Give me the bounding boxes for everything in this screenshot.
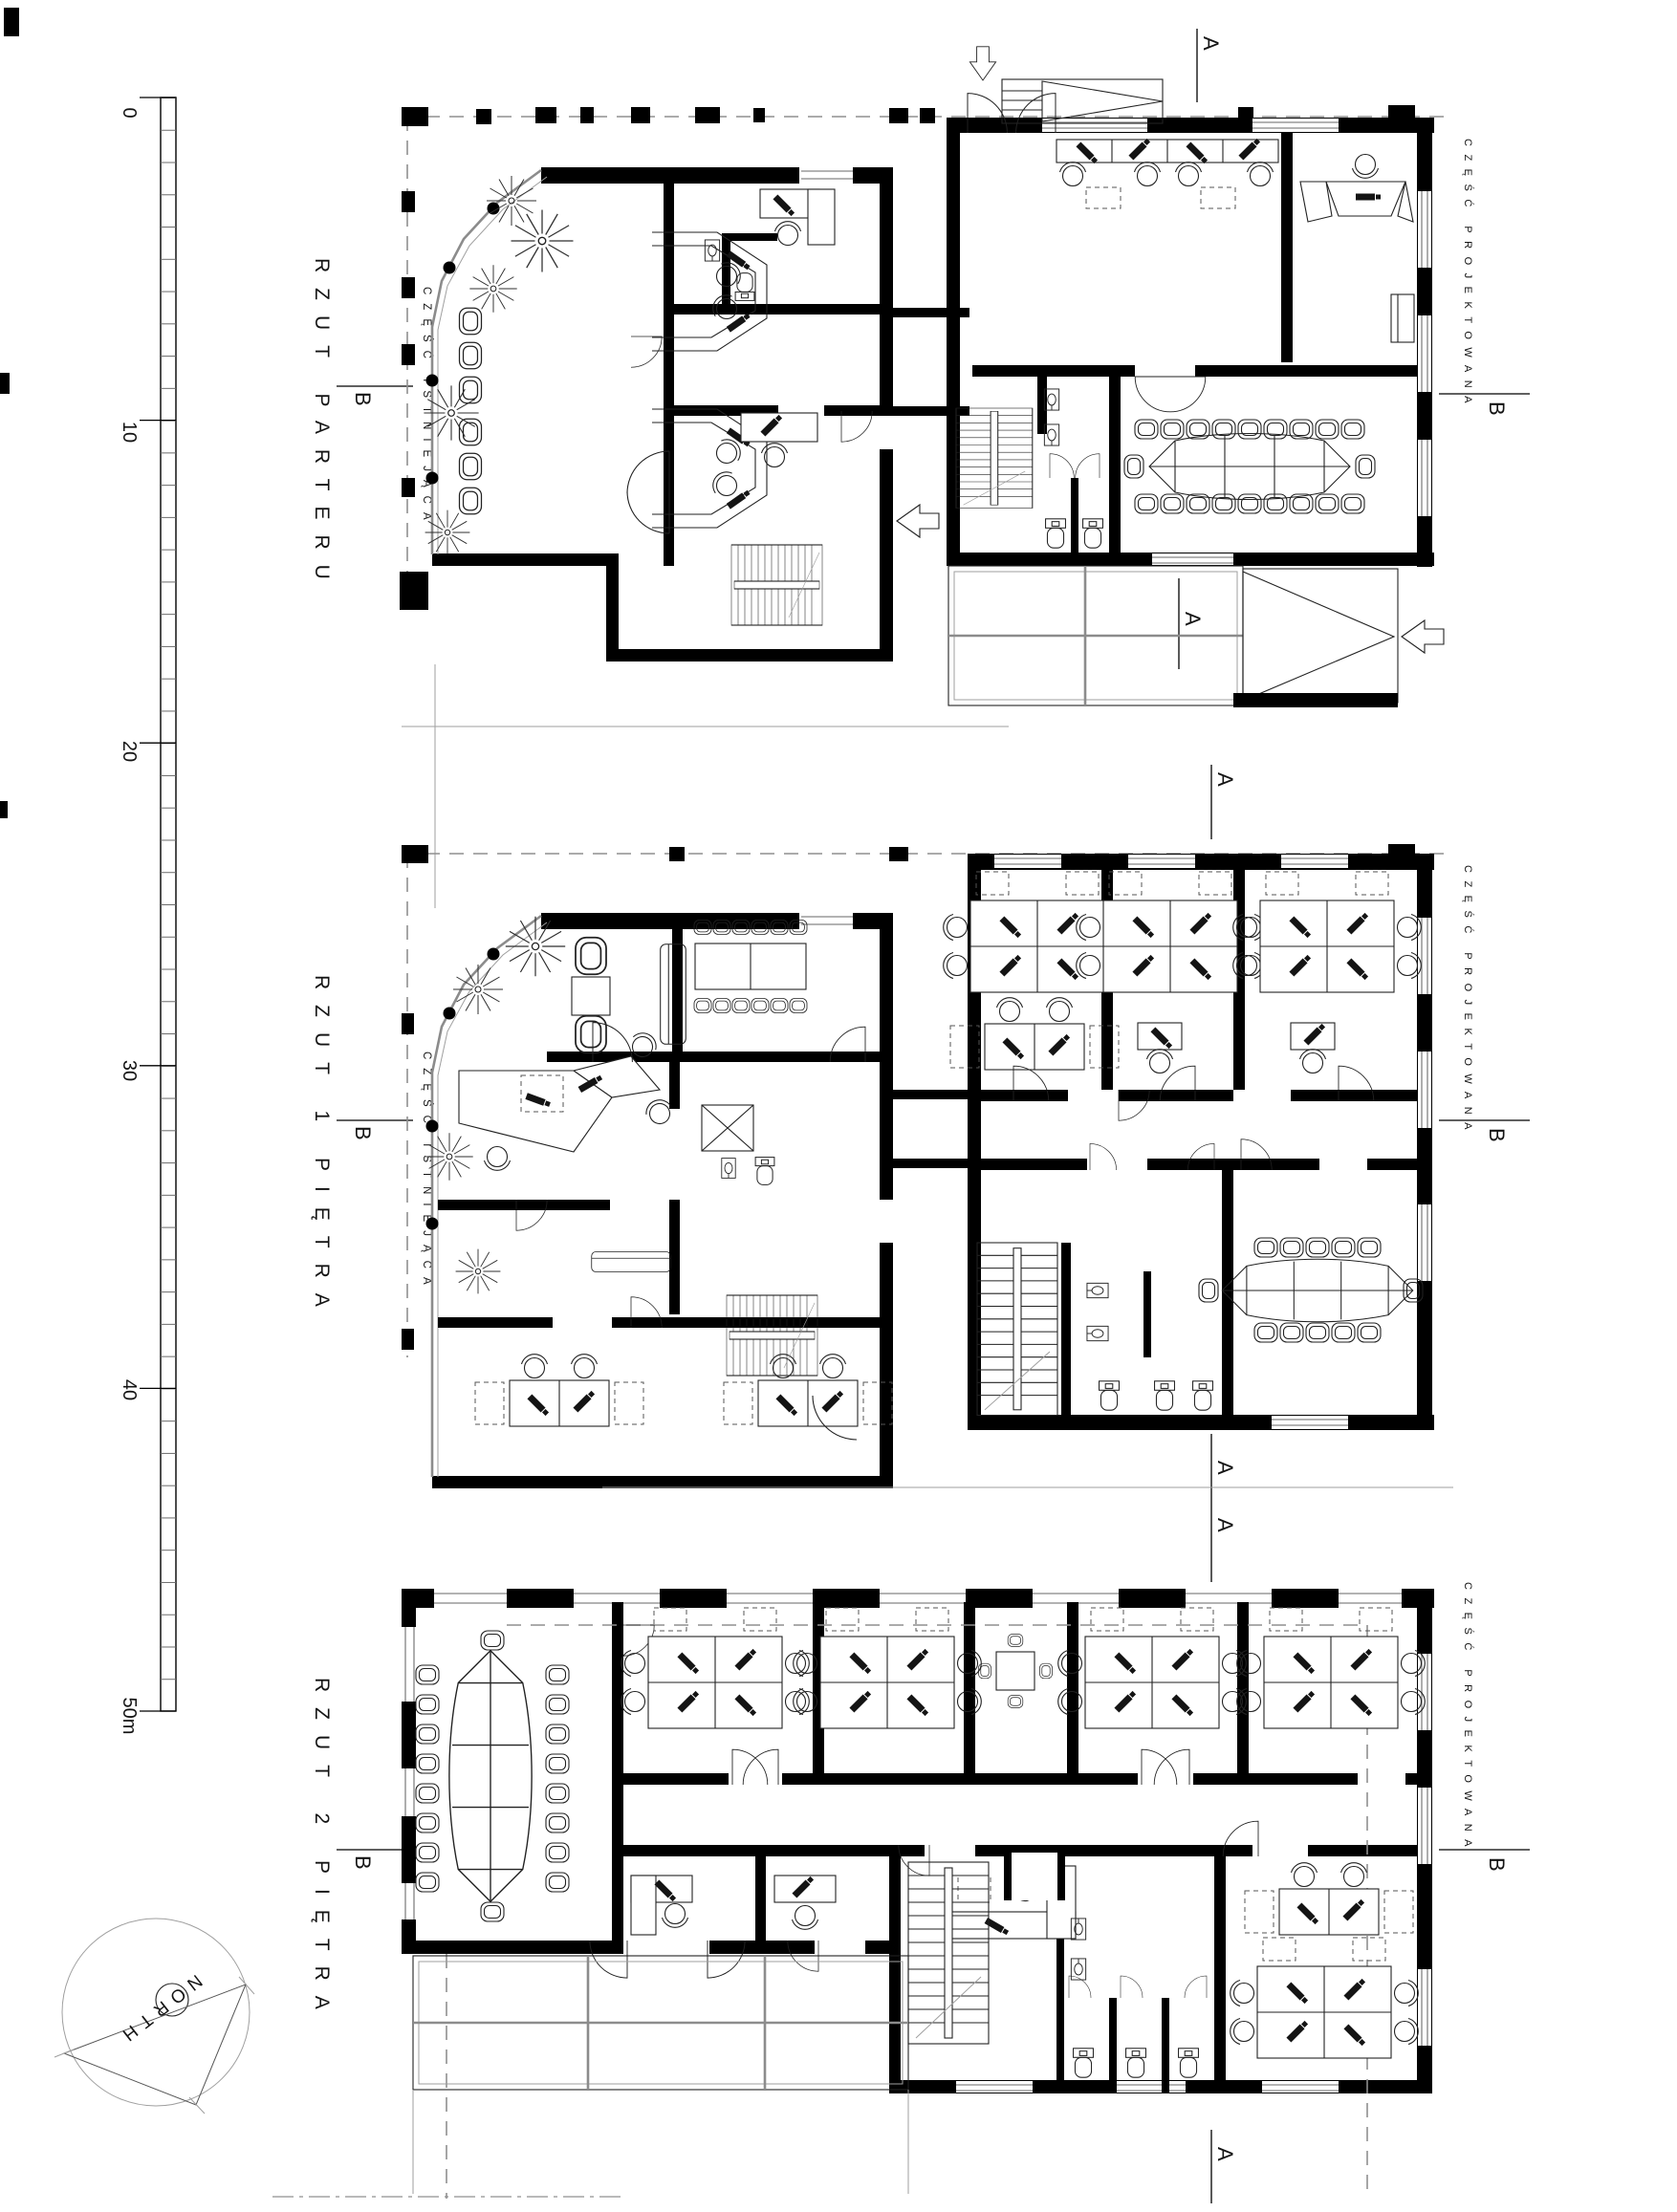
svg-text:B: B [351,1126,375,1140]
section-marker-a-top: A [1211,1508,1237,1582]
svg-text:A: A [1213,772,1237,787]
stairs [908,1862,989,2044]
link-corridor [889,1090,971,1168]
floor-plan-first: RZUT 1 PIĘTRA CZĘŚĆ ISTNIEJĄCA CZĘŚĆ PRO… [311,765,1530,1508]
svg-text:A: A [1213,1461,1237,1475]
section-marker-a-bottom: A [1211,1434,1237,1508]
executive-desk [459,1029,675,1170]
svg-text:B: B [1485,401,1509,416]
north-label: NORTH [113,1970,206,2049]
svg-text:A: A [1181,612,1205,626]
office-desks-existing [741,189,835,467]
office-rooms-bottom-right [1231,1863,1419,2058]
plan-title: RZUT 1 PIĘTRA [311,975,333,1322]
svg-text:B: B [1485,1857,1509,1872]
stairs-existing [731,545,822,625]
meeting-table-existing [694,921,807,1013]
svg-text:B: B [351,1855,375,1870]
lounge [572,938,686,1052]
scale-label-0: 0 [119,107,140,118]
open-office-desks [1056,138,1278,208]
registration-marks [0,8,19,818]
office-rooms-top [621,1608,1426,1728]
plants [424,176,573,554]
plan-title: RZUT 2 PIĘTRA [311,1678,333,2025]
office-cluster-sw [475,1252,892,1427]
floor-plans-drawing: 0 10 20 30 40 50m NORTH RZUT PARTERU CZĘ… [0,0,1677,2212]
svg-text:A: A [1199,36,1223,51]
scale-label-50m: 50m [119,1698,140,1735]
north-compass: NORTH [54,1919,254,2114]
svg-text:B: B [1485,1128,1509,1142]
section-marker-a-top: A [1197,29,1223,102]
section-marker-b-left: B [337,1120,413,1140]
scale-label-10: 10 [119,422,140,443]
section-marker-b-left: B [337,386,413,406]
scale-bar: 0 10 20 30 40 50m [119,98,176,1734]
entry-hall-table [979,1635,1053,1708]
scale-label-30: 30 [119,1060,140,1081]
projected-part-label: CZĘŚĆ PROJEKTOWANA [1462,865,1474,1138]
svg-text:B: B [351,392,375,406]
terrace-grid [948,566,1243,705]
scale-label-20: 20 [119,741,140,762]
terrace-grid [413,1956,908,2090]
svg-text:A: A [1213,1518,1237,1532]
section-marker-a-top: A [1211,765,1237,839]
projected-part-label: CZĘŚĆ PROJEKTOWANA [1462,139,1474,411]
wc-block [1069,1919,1207,2077]
section-marker-b-right: B [1439,1850,1530,1872]
plan-title: RZUT PARTERU [311,258,333,595]
section-marker-b-right: B [1439,394,1530,416]
office-room-3 [1233,872,1422,1073]
section-marker-b-right: B [1439,1120,1530,1142]
projected-part-label: CZĘŚĆ PROJEKTOWANA [1462,1582,1474,1854]
conference-room [1124,377,1375,513]
scale-label-40: 40 [119,1379,140,1400]
stairs-existing [727,1295,817,1376]
stairs-projected [956,408,1033,509]
floor-plan-second: RZUT 2 PIĘTRA CZĘŚĆ PROJEKTOWANA A A B B [272,1508,1530,2203]
waiting-chairs [460,308,482,514]
entrance-canopy [1233,569,1444,707]
stairs-projected [977,1243,1057,1416]
wc-existing [722,1158,774,1185]
svg-text:A: A [1213,2147,1237,2161]
elevator [1004,1845,1065,1900]
section-marker-a-bottom: A [1179,578,1205,669]
section-marker-a-bottom: A [1211,2130,1237,2203]
executive-office [1300,155,1414,343]
architectural-sheet: 0 10 20 30 40 50m NORTH RZUT PARTERU CZĘ… [0,0,1677,2212]
elevator [702,1105,753,1151]
floor-plan-ground: RZUT PARTERU CZĘŚĆ ISTNIEJĄCA CZĘŚĆ PROJ… [311,29,1530,908]
